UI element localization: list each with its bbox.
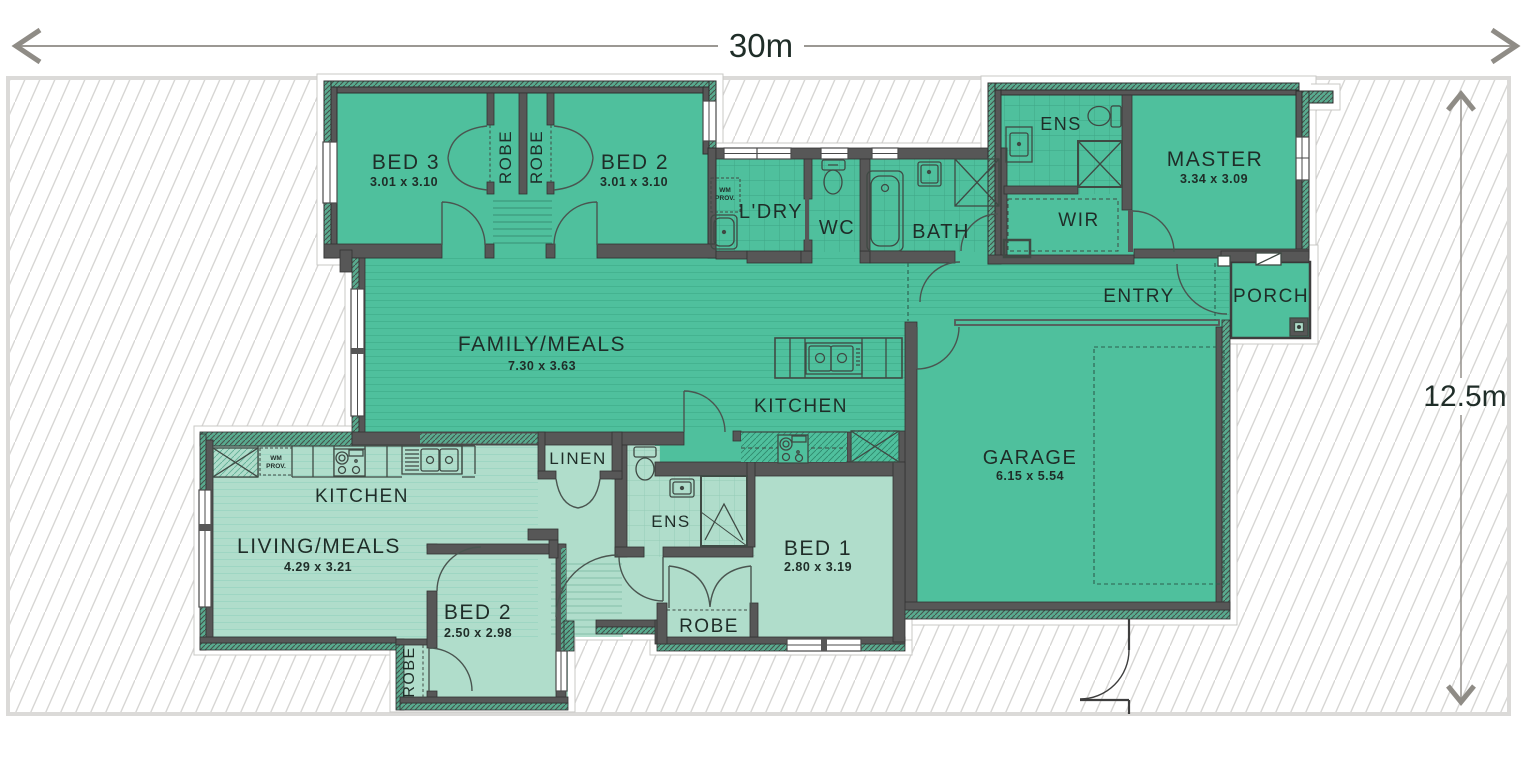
svg-text:BED 2: BED 2	[601, 151, 669, 174]
svg-text:GARAGE: GARAGE	[983, 447, 1078, 469]
svg-text:6.15 x 5.54: 6.15 x 5.54	[996, 469, 1064, 483]
svg-text:BATH: BATH	[912, 221, 970, 243]
svg-text:4.29 x 3.21: 4.29 x 3.21	[284, 560, 352, 574]
svg-text:WM: WM	[719, 187, 731, 194]
svg-text:KITCHEN: KITCHEN	[754, 396, 848, 417]
svg-text:WIR: WIR	[1058, 210, 1099, 231]
svg-text:BED 2: BED 2	[444, 601, 512, 624]
svg-text:ROBE: ROBE	[679, 616, 739, 637]
svg-text:ROBE: ROBE	[527, 130, 546, 184]
svg-text:ROBE: ROBE	[401, 646, 418, 697]
svg-text:7.30 x 3.63: 7.30 x 3.63	[508, 359, 576, 373]
svg-text:BED 3: BED 3	[372, 151, 440, 174]
svg-text:LIVING/MEALS: LIVING/MEALS	[237, 535, 401, 558]
svg-text:WM: WM	[270, 455, 282, 462]
svg-text:2.80 x 3.19: 2.80 x 3.19	[784, 560, 852, 574]
svg-text:BED 1: BED 1	[784, 537, 852, 560]
svg-text:ENS: ENS	[651, 512, 690, 531]
svg-text:FAMILY/MEALS: FAMILY/MEALS	[458, 333, 626, 356]
svg-text:12.5m: 12.5m	[1423, 380, 1506, 413]
svg-text:3.01 x 3.10: 3.01 x 3.10	[370, 175, 438, 189]
svg-text:KITCHEN: KITCHEN	[315, 486, 409, 507]
svg-text:PROV.: PROV.	[715, 195, 735, 202]
svg-text:30m: 30m	[729, 27, 793, 64]
svg-text:ENS: ENS	[1040, 114, 1082, 134]
svg-text:LINEN: LINEN	[549, 449, 607, 468]
svg-text:ROBE: ROBE	[496, 130, 515, 184]
svg-text:PROV.: PROV.	[266, 463, 286, 470]
svg-text:WC: WC	[819, 217, 855, 239]
svg-text:MASTER: MASTER	[1167, 148, 1264, 171]
svg-text:ENTRY: ENTRY	[1103, 286, 1175, 307]
svg-text:2.50 x 2.98: 2.50 x 2.98	[444, 626, 512, 640]
svg-text:PORCH: PORCH	[1233, 286, 1309, 307]
svg-text:L'DRY: L'DRY	[739, 201, 803, 223]
svg-text:3.01 x 3.10: 3.01 x 3.10	[600, 175, 668, 189]
svg-text:3.34 x 3.09: 3.34 x 3.09	[1180, 172, 1248, 186]
